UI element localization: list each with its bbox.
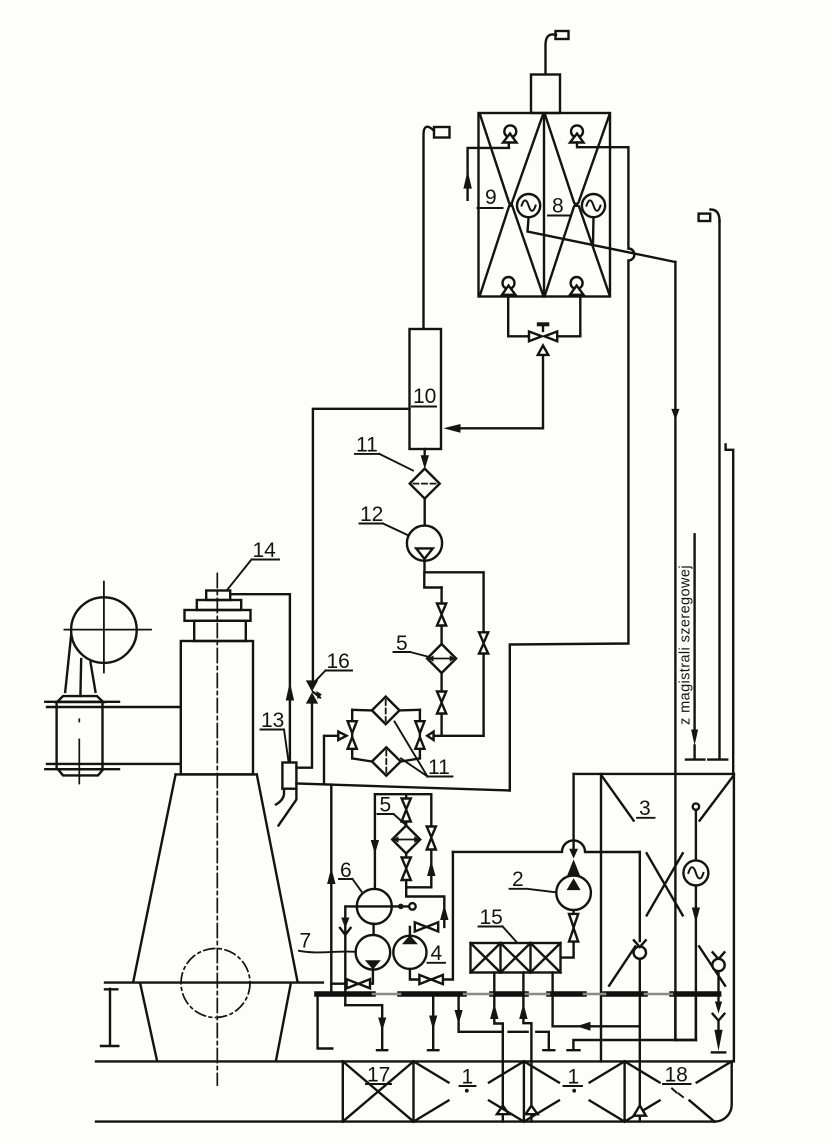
svg-text:7: 7 (300, 930, 312, 953)
svg-text:2: 2 (512, 868, 524, 891)
svg-text:3: 3 (639, 797, 651, 820)
svg-text:4: 4 (431, 942, 443, 965)
svg-text:9: 9 (485, 186, 497, 209)
svg-text:10: 10 (413, 385, 436, 408)
svg-text:z magistrali szeregowej: z magistrali szeregowej (678, 565, 694, 725)
svg-text:8: 8 (552, 195, 564, 218)
